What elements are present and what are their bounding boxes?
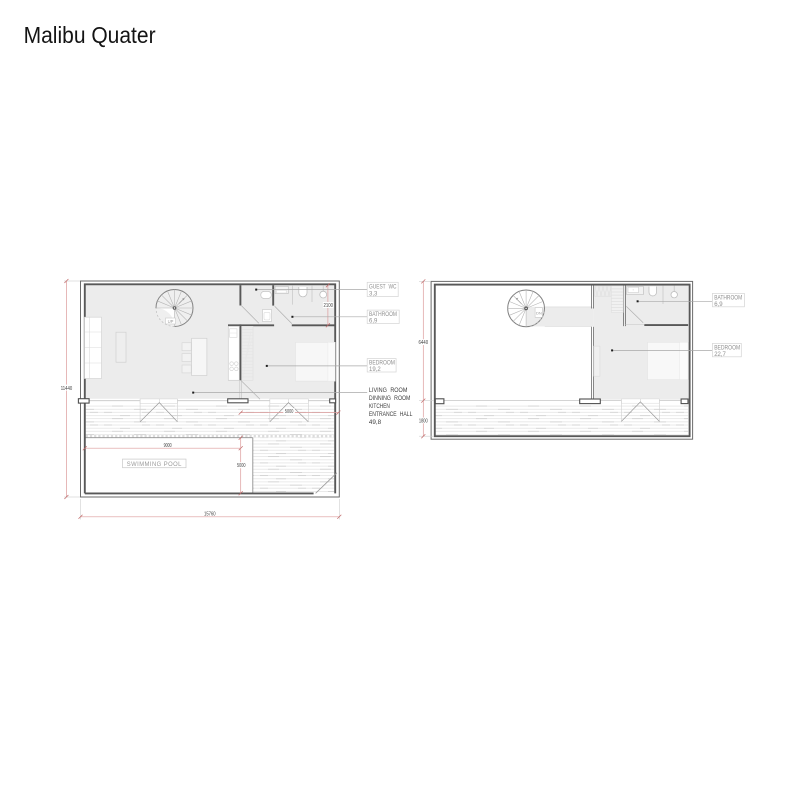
svg-text:6440: 6440 — [418, 340, 428, 346]
svg-text:BEDROOM: BEDROOM — [369, 361, 395, 367]
svg-text:49,8: 49,8 — [369, 419, 382, 426]
svg-text:2100: 2100 — [323, 303, 333, 309]
svg-text:6,9: 6,9 — [369, 319, 378, 325]
svg-text:KITCHEN: KITCHEN — [369, 403, 390, 410]
svg-text:3,3: 3,3 — [369, 291, 378, 297]
svg-text:BEDROOM: BEDROOM — [714, 346, 740, 352]
svg-text:BATHROOM: BATHROOM — [714, 296, 742, 302]
svg-text:UP: UP — [168, 319, 174, 324]
svg-text:ENTRANCE HALL: ENTRANCE HALL — [369, 411, 413, 418]
svg-text:GUEST WC: GUEST WC — [369, 285, 397, 291]
svg-text:BATHROOM: BATHROOM — [369, 312, 397, 318]
svg-text:SWIMMING POOL: SWIMMING POOL — [127, 461, 182, 468]
svg-text:19,2: 19,2 — [369, 367, 381, 373]
svg-text:5000: 5000 — [237, 463, 246, 469]
svg-text:22,7: 22,7 — [714, 352, 726, 358]
svg-text:1800: 1800 — [419, 418, 428, 424]
svg-text:11440: 11440 — [61, 386, 73, 392]
svg-text:Malibu Quater: Malibu Quater — [24, 22, 156, 48]
svg-text:5000: 5000 — [285, 409, 294, 415]
svg-text:6,9: 6,9 — [714, 302, 723, 308]
svg-text:9000: 9000 — [164, 443, 172, 449]
svg-text:DN: DN — [536, 311, 542, 316]
svg-text:15760: 15760 — [204, 512, 216, 518]
svg-text:DINNING ROOM: DINNING ROOM — [369, 395, 411, 402]
svg-text:LIVING ROOM: LIVING ROOM — [369, 387, 408, 394]
